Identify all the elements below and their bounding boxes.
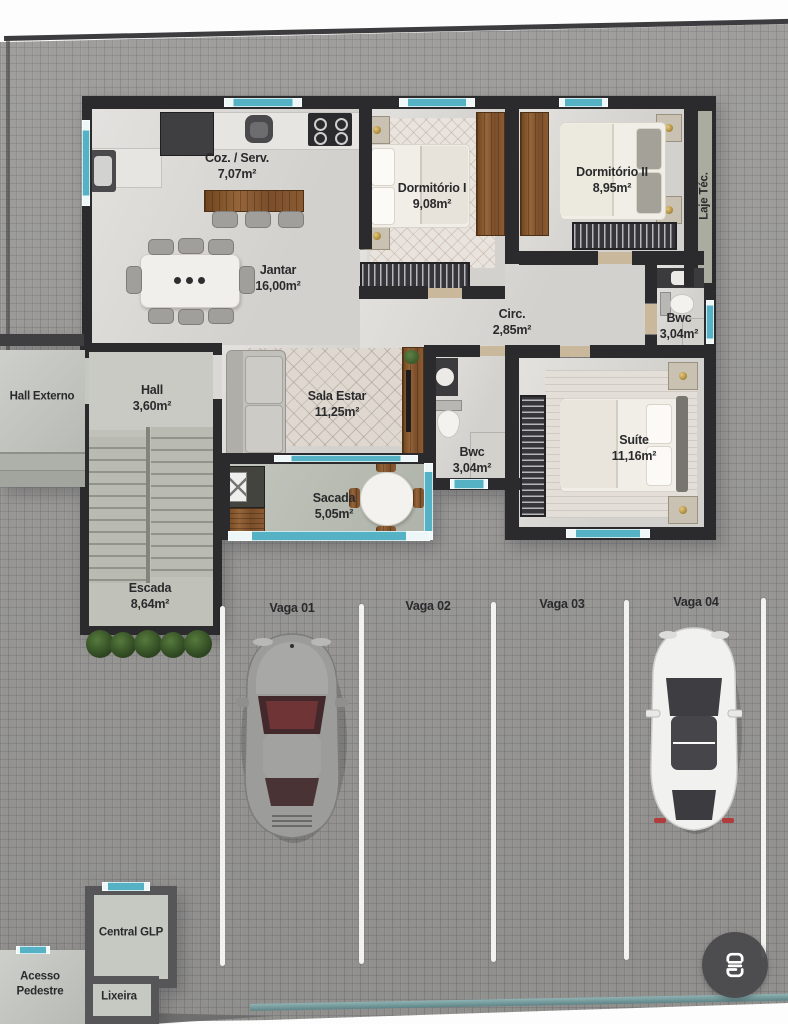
room-area: 8,95m² bbox=[576, 180, 648, 196]
room-area: 16,00m² bbox=[255, 278, 300, 294]
window bbox=[82, 120, 90, 206]
wall bbox=[590, 345, 716, 358]
dining-chair bbox=[208, 308, 234, 324]
pillow bbox=[371, 148, 395, 186]
window bbox=[450, 479, 488, 489]
room-label-suite: Suíte 11,16m² bbox=[612, 432, 656, 464]
wall bbox=[645, 265, 657, 303]
external-step bbox=[0, 452, 85, 472]
dining-table bbox=[140, 254, 240, 308]
stove bbox=[308, 113, 352, 146]
door bbox=[428, 288, 462, 298]
label-acesso-pedestre: Acesso Pedestre bbox=[7, 969, 73, 998]
plant bbox=[110, 632, 136, 658]
door bbox=[560, 346, 590, 357]
external-step bbox=[0, 470, 85, 487]
label-vaga-04: Vaga 04 bbox=[673, 594, 718, 610]
label-vaga-03: Vaga 03 bbox=[539, 596, 584, 612]
room-label-dormitorio1: Dormitório I 9,08m² bbox=[398, 180, 466, 212]
balcony-glass-rail bbox=[424, 463, 433, 540]
room-label-sala-estar: Sala Estar 11,25m² bbox=[308, 388, 366, 420]
car-gray bbox=[236, 628, 348, 846]
room-label-circulacao: Circ. 2,85m² bbox=[493, 306, 531, 338]
label-lixeira: Lixeira bbox=[101, 990, 137, 1005]
label-vaga-02: Vaga 02 bbox=[405, 598, 450, 614]
label-central-glp: Central GLP bbox=[99, 926, 163, 941]
parking-line bbox=[624, 600, 629, 960]
text-scan-icon bbox=[717, 947, 753, 983]
wall bbox=[505, 96, 519, 264]
suite-closet bbox=[520, 395, 546, 517]
table-decor bbox=[174, 277, 181, 284]
plant bbox=[184, 630, 212, 658]
glass-hatch bbox=[229, 472, 247, 502]
room-area: 11,25m² bbox=[308, 404, 366, 420]
door bbox=[598, 252, 632, 264]
parking-line bbox=[220, 606, 225, 966]
parking-spot-name: Vaga 03 bbox=[539, 596, 584, 612]
room-name: Dormitório I bbox=[398, 180, 466, 196]
sofa-back bbox=[227, 351, 243, 457]
car-white bbox=[646, 622, 742, 838]
wall bbox=[505, 345, 519, 540]
structure-name: Central GLP bbox=[99, 926, 163, 941]
stair-flight bbox=[151, 427, 213, 577]
laundry-tank bbox=[90, 150, 116, 192]
scan-button[interactable] bbox=[702, 932, 768, 998]
window bbox=[566, 529, 650, 538]
bar-stool bbox=[245, 211, 271, 228]
room-label-bwc-social: Bwc 3,04m² bbox=[453, 444, 491, 476]
room-label-hall: Hall 3,60m² bbox=[133, 382, 171, 414]
room-name: Jantar bbox=[255, 262, 300, 278]
room-name: Dormitório II bbox=[576, 164, 648, 180]
parking-line bbox=[761, 598, 766, 958]
parking-line bbox=[491, 602, 496, 962]
balcony-sliding-door bbox=[274, 455, 418, 462]
balcony-table bbox=[360, 472, 414, 526]
nightstand bbox=[668, 496, 698, 524]
dining-chair bbox=[239, 266, 255, 294]
window bbox=[224, 98, 302, 107]
wall bbox=[359, 286, 428, 299]
sofa bbox=[226, 350, 286, 458]
room-name: Sala Estar bbox=[308, 388, 366, 404]
balcony-glass-rail bbox=[228, 531, 430, 541]
room-area: 3,04m² bbox=[660, 326, 698, 342]
room-name: Circ. bbox=[493, 306, 531, 322]
room-name: Bwc bbox=[453, 444, 491, 460]
room-label-escada: Escada 8,64m² bbox=[129, 580, 172, 612]
balcony-cabinet bbox=[225, 466, 265, 508]
sink-basin bbox=[250, 122, 268, 138]
burner bbox=[335, 132, 348, 145]
room-label-hall-externo: Hall Externo bbox=[10, 390, 75, 405]
parking-spot-name: Vaga 02 bbox=[405, 598, 450, 614]
boundary-wall bbox=[0, 334, 84, 346]
dining-chair bbox=[148, 239, 174, 255]
window bbox=[559, 98, 608, 107]
pillow bbox=[371, 187, 395, 225]
wall bbox=[222, 460, 230, 540]
window bbox=[399, 98, 475, 107]
bar-stool bbox=[278, 211, 304, 228]
bedroom2-closet bbox=[572, 222, 677, 250]
room-name: Hall bbox=[133, 382, 171, 398]
plant bbox=[160, 632, 186, 658]
room-label-sacada: Sacada 5,05m² bbox=[313, 490, 356, 522]
floor-plan-screenshot: Coz. / Serv. 7,07m² Jantar 16,00m² Dormi… bbox=[0, 0, 788, 1024]
room-label-bwc-suite: Bwc 3,04m² bbox=[660, 310, 698, 342]
wall bbox=[684, 109, 694, 287]
bar-stool bbox=[212, 211, 238, 228]
window bbox=[102, 882, 150, 891]
parking-spot-name: Vaga 04 bbox=[673, 594, 718, 610]
room-area: 11,16m² bbox=[612, 448, 656, 464]
bedroom1-wardrobe-wood bbox=[476, 112, 505, 236]
stair-divider bbox=[146, 427, 150, 583]
room-area: 3,04m² bbox=[453, 460, 491, 476]
room-name: Hall Externo bbox=[10, 390, 75, 405]
room-area: 3,60m² bbox=[133, 398, 171, 414]
vanity bbox=[657, 268, 704, 288]
dining-chair bbox=[178, 309, 204, 325]
dining-chair bbox=[208, 239, 234, 255]
nightstand bbox=[668, 362, 698, 390]
kitchen-island-bar bbox=[204, 190, 304, 212]
sofa-cushion bbox=[245, 356, 283, 404]
room-area: 7,07m² bbox=[205, 166, 269, 182]
room-area: 8,64m² bbox=[129, 596, 172, 612]
wall bbox=[519, 251, 598, 265]
building bbox=[0, 0, 788, 1024]
dining-chair bbox=[178, 238, 204, 254]
door bbox=[480, 346, 505, 356]
parking-line bbox=[359, 604, 364, 964]
room-area: 5,05m² bbox=[313, 506, 356, 522]
headboard bbox=[676, 396, 688, 492]
room-label-dormitorio2: Dormitório II 8,95m² bbox=[576, 164, 648, 196]
room-name: Coz. / Serv. bbox=[205, 150, 269, 166]
balcony-stool bbox=[413, 488, 424, 508]
blanket bbox=[560, 400, 618, 488]
tank-basin bbox=[94, 156, 112, 186]
room-name: Bwc bbox=[660, 310, 698, 326]
structure-name: Lixeira bbox=[101, 990, 137, 1005]
wall bbox=[462, 286, 505, 299]
room-area: 2,85m² bbox=[493, 322, 531, 338]
structure-name: Acesso Pedestre bbox=[7, 969, 73, 998]
sofa-cushion bbox=[245, 405, 283, 453]
label-vaga-01: Vaga 01 bbox=[269, 600, 314, 616]
wall bbox=[424, 345, 480, 357]
window bbox=[16, 946, 50, 954]
room-name: Sacada bbox=[313, 490, 356, 506]
room-label-jantar: Jantar 16,00m² bbox=[255, 262, 300, 294]
dining-chair bbox=[148, 308, 174, 324]
burner bbox=[314, 132, 327, 145]
tv bbox=[406, 370, 411, 432]
dining-chair bbox=[126, 266, 142, 294]
wall bbox=[359, 109, 372, 249]
room-name: Laje Téc. bbox=[698, 172, 713, 219]
bedroom2-wardrobe-wood bbox=[520, 112, 549, 236]
kitchen-sink bbox=[245, 115, 273, 143]
table-decor bbox=[186, 277, 193, 284]
room-name: Escada bbox=[129, 580, 172, 596]
basin bbox=[436, 368, 454, 386]
unit-door-opening bbox=[213, 355, 222, 399]
burner bbox=[335, 118, 348, 131]
room-label-laje-tecnica: Laje Téc. bbox=[698, 172, 713, 219]
stair-flight bbox=[89, 437, 147, 583]
plant bbox=[404, 350, 419, 364]
burner bbox=[314, 118, 327, 131]
plant bbox=[134, 630, 162, 658]
room-area: 9,08m² bbox=[398, 196, 466, 212]
window bbox=[706, 300, 714, 344]
door bbox=[645, 304, 657, 334]
table-decor bbox=[198, 277, 205, 284]
room-name: Suíte bbox=[612, 432, 656, 448]
parking-spot-name: Vaga 01 bbox=[269, 600, 314, 616]
room-label-cozinha: Coz. / Serv. 7,07m² bbox=[205, 150, 269, 182]
